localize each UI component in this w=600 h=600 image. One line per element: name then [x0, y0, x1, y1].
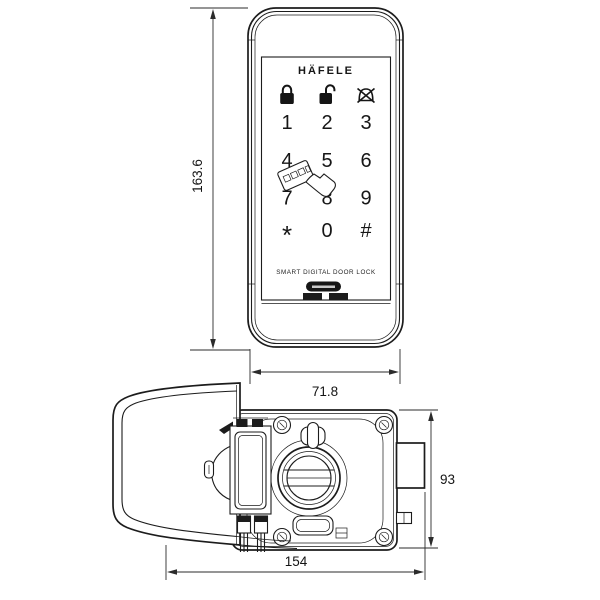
dim-side-depth-label: 154 [285, 554, 308, 569]
keypad-key-3: 3 [360, 112, 371, 134]
front-view: HÄFELE 1 2 3 4 5 6 7 8 9 * 0 # [190, 8, 403, 399]
keypad-key-hash: # [360, 220, 372, 242]
keypad-key-2: 2 [321, 112, 332, 134]
dim-front-width: 71.8 [250, 349, 400, 399]
keypad-key-6: 6 [360, 150, 371, 172]
door-lock-drawing: HÄFELE 1 2 3 4 5 6 7 8 9 * 0 # [0, 0, 600, 600]
bottom-tab [329, 293, 348, 300]
brand-logo: HÄFELE [298, 64, 354, 77]
footer-label: SMART DIGITAL DOOR LOCK [276, 269, 376, 276]
latch-bolt [397, 443, 425, 524]
side-view: 93 154 [113, 383, 455, 580]
bottom-tab [303, 293, 322, 300]
corner-screw [376, 417, 393, 434]
corner-screw [274, 417, 291, 434]
model-badge [306, 282, 341, 292]
corner-screw [274, 529, 291, 546]
keypad-key-star: * [282, 220, 292, 250]
keypad-key-1: 1 [281, 112, 292, 134]
dim-side-height-label: 93 [440, 472, 455, 487]
dim-front-height-label: 163.6 [190, 159, 205, 193]
corner-screw [376, 529, 393, 546]
keypad-key-0: 0 [321, 220, 332, 242]
dim-front-width-label: 71.8 [312, 384, 338, 399]
thumbturn-knob [271, 440, 347, 516]
keypad-key-9: 9 [360, 188, 371, 210]
keypad-key-5: 5 [321, 150, 332, 172]
dim-front-height: 163.6 [190, 8, 250, 350]
technical-drawing-page: HÄFELE 1 2 3 4 5 6 7 8 9 * 0 # [0, 0, 600, 600]
